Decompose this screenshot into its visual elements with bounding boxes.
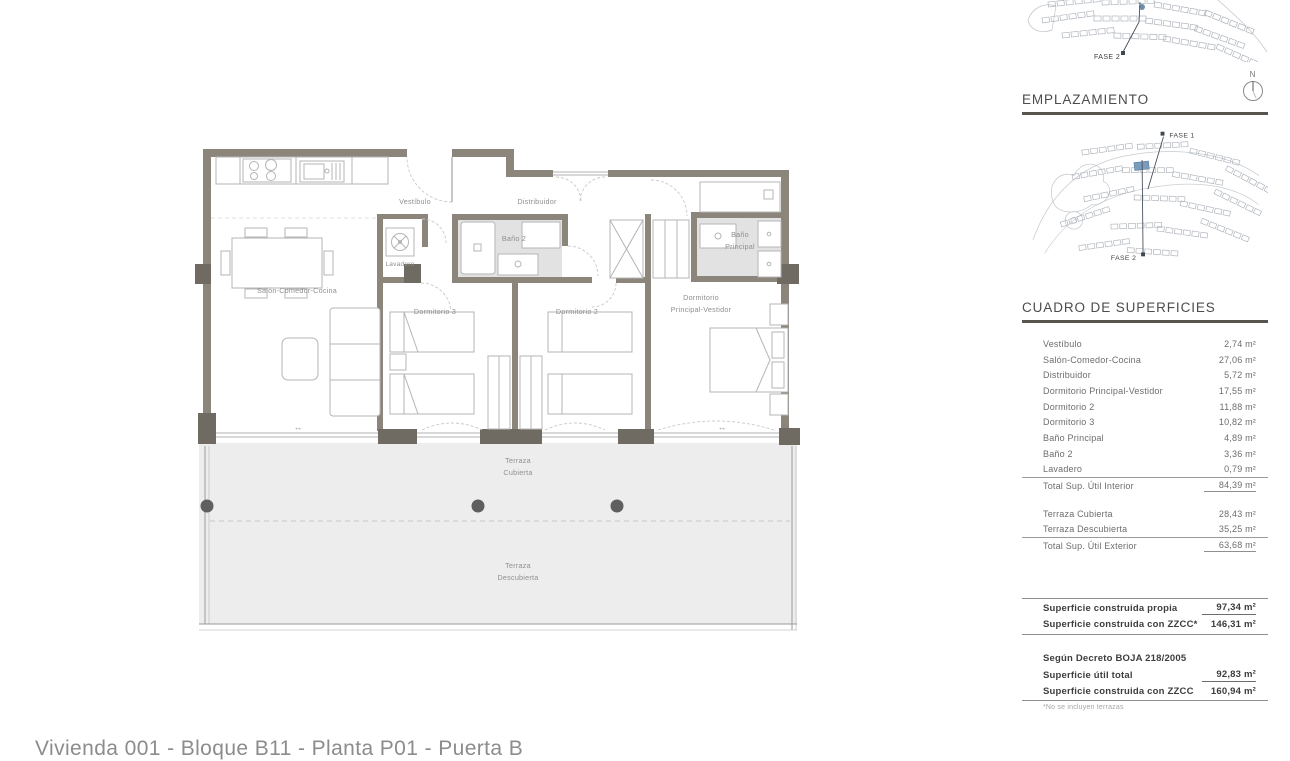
row-value: 27,06 m² <box>1219 355 1256 365</box>
slide-arrow-icon: ↔ <box>294 422 303 432</box>
label-dormitorio3: Dormitorio 3 <box>414 307 456 316</box>
row-value: 160,94 m² <box>1202 686 1256 697</box>
decreto-block: Según Decreto BOJA 218/2005 Superficie ú… <box>1022 650 1268 701</box>
fase1-label: FASE 1 <box>1169 133 1194 140</box>
row-label: Superficie útil total <box>1043 670 1133 681</box>
row-label: Superficie construida propia <box>1043 603 1177 614</box>
table-row: Baño 23,36 m² <box>1022 446 1268 462</box>
emplazamiento-heading: EMPLAZAMIENTO N <box>1022 92 1268 115</box>
sidebar: FASE 2 EMPLAZAMIENTO N <box>1022 0 1268 711</box>
label-bano-principal-1: Baño <box>731 230 749 239</box>
row-label: Terraza Cubierta <box>1043 509 1113 519</box>
fase2-label-top: FASE 2 <box>1094 54 1120 61</box>
row-label: Distribuidor <box>1043 370 1091 380</box>
row-value: 84,39 m² <box>1204 480 1256 492</box>
table-row: Dormitorio 310,82 m² <box>1022 414 1268 430</box>
floorplan-sheet: { "footer": { "title": "Vivienda 001 - B… <box>0 0 1290 755</box>
label-terraza-cubierta-1: Terraza <box>505 456 531 465</box>
interior-total-row: Total Sup. Útil Interior84,39 m² <box>1022 477 1268 494</box>
label-dormitorio2: Dormitorio 2 <box>556 307 598 316</box>
row-value: 11,88 m² <box>1220 402 1256 412</box>
table-row: Dormitorio Principal-Vestidor17,55 m² <box>1022 383 1268 399</box>
site-plan-overview: FASE 2 <box>1022 0 1268 62</box>
exterior-total-row: Total Sup. Útil Exterior63,68 m² <box>1022 537 1268 554</box>
table-row: Terraza Cubierta28,43 m² <box>1022 506 1268 522</box>
row-value: 97,34 m² <box>1202 602 1256 615</box>
table-row-bold: Superficie construida propia97,34 m² <box>1022 600 1268 617</box>
label-bano2: Baño 2 <box>502 234 526 243</box>
site-plan-emplazamiento: FASE 1 FASE 2 <box>1022 121 1268 306</box>
table-row: Vestíbulo2,74 m² <box>1022 336 1268 352</box>
row-value: 5,72 m² <box>1224 370 1256 380</box>
table-row: Dormitorio 211,88 m² <box>1022 399 1268 415</box>
label-dorm-principal-2: Principal-Vestidor <box>671 305 732 314</box>
label-dorm-principal-1: Dormitorio <box>683 293 719 302</box>
table-row: Lavadero0,79 m² <box>1022 462 1268 478</box>
row-label: Total Sup. Útil Interior <box>1043 481 1134 491</box>
row-label: Baño Principal <box>1043 433 1104 443</box>
label-distribuidor: Distribuidor <box>517 197 557 206</box>
row-label: Baño 2 <box>1043 449 1073 459</box>
table-row-bold: Superficie útil total92,83 m² <box>1022 667 1268 684</box>
row-label: Terraza Descubierta <box>1043 524 1127 534</box>
row-value: 92,83 m² <box>1202 669 1256 682</box>
row-value: 28,43 m² <box>1219 509 1256 519</box>
table-row: Distribuidor5,72 m² <box>1022 367 1268 383</box>
row-label: Salón-Comedor-Cocina <box>1043 355 1141 365</box>
north-compass-icon: N <box>1240 68 1266 106</box>
cuadro-title: CUADRO DE SUPERFICIES <box>1022 300 1216 315</box>
fase1-leader-line <box>1148 137 1164 190</box>
row-label: Lavadero <box>1043 464 1082 474</box>
terrace-area <box>199 443 797 630</box>
cuadro-heading: CUADRO DE SUPERFICIES <box>1022 300 1268 323</box>
row-label: Total Sup. Útil Exterior <box>1043 541 1137 551</box>
emplazamiento-title: EMPLAZAMIENTO <box>1022 92 1149 107</box>
slide-arrow-icon: ↔ <box>718 422 727 432</box>
table-row: Baño Principal4,89 m² <box>1022 430 1268 446</box>
table-row: Terraza Descubierta35,25 m² <box>1022 522 1268 538</box>
decreto-heading: Según Decreto BOJA 218/2005 <box>1022 650 1268 667</box>
row-label: Dormitorio 3 <box>1043 417 1094 427</box>
table-footnote: *No se incluyen terrazas <box>1022 704 1268 711</box>
row-value: 35,25 m² <box>1219 524 1256 534</box>
row-value: 17,55 m² <box>1219 386 1256 396</box>
label-lavadero: Lavadero <box>385 261 414 268</box>
row-label: Dormitorio Principal-Vestidor <box>1043 386 1163 396</box>
row-value: 4,89 m² <box>1224 433 1256 443</box>
row-value: 63,68 m² <box>1204 540 1256 552</box>
row-label: Vestíbulo <box>1043 339 1082 349</box>
table-row-bold: Superficie construida con ZZCC160,94 m² <box>1022 683 1268 700</box>
label-vestibulo: Vestíbulo <box>399 197 431 206</box>
table-row-bold: Superficie construida con ZZCC*146,31 m² <box>1022 616 1268 633</box>
highlighted-block <box>1134 161 1149 170</box>
label-salon: Salón-Comedor-Cocina <box>257 286 337 295</box>
fase2-label: FASE 2 <box>1111 255 1136 262</box>
row-value: 10,82 m² <box>1219 417 1256 427</box>
table-row: Salón-Comedor-Cocina27,06 m² <box>1022 352 1268 368</box>
floor-plan-drawing: Vestíbulo Distribuidor Lavadero Baño 2 S… <box>185 140 810 640</box>
row-value: 0,79 m² <box>1224 464 1256 474</box>
label-terraza-descubierta-2: Descubierta <box>497 573 538 582</box>
row-label: Superficie construida con ZZCC <box>1043 686 1194 697</box>
surface-table: Vestíbulo2,74 m² Salón-Comedor-Cocina27,… <box>1022 336 1268 711</box>
row-value: 146,31 m² <box>1202 619 1256 630</box>
fase2-leader-line <box>1142 160 1143 253</box>
svg-text:N: N <box>1250 70 1257 79</box>
row-value: 3,36 m² <box>1224 449 1256 459</box>
construida-block: Superficie construida propia97,34 m² Sup… <box>1022 598 1268 635</box>
fase2-leader-line <box>1123 2 1140 52</box>
row-label: Dormitorio 2 <box>1043 402 1094 412</box>
row-value: 2,74 m² <box>1224 339 1256 349</box>
row-label: Superficie construida con ZZCC* <box>1043 619 1198 630</box>
label-bano-principal-2: Principal <box>725 242 755 251</box>
floor-plan: Vestíbulo Distribuidor Lavadero Baño 2 S… <box>185 140 810 640</box>
unit-title: Vivienda 001 - Bloque B11 - Planta P01 -… <box>35 737 523 761</box>
label-terraza-descubierta-1: Terraza <box>505 561 531 570</box>
label-terraza-cubierta-2: Cubierta <box>503 468 532 477</box>
